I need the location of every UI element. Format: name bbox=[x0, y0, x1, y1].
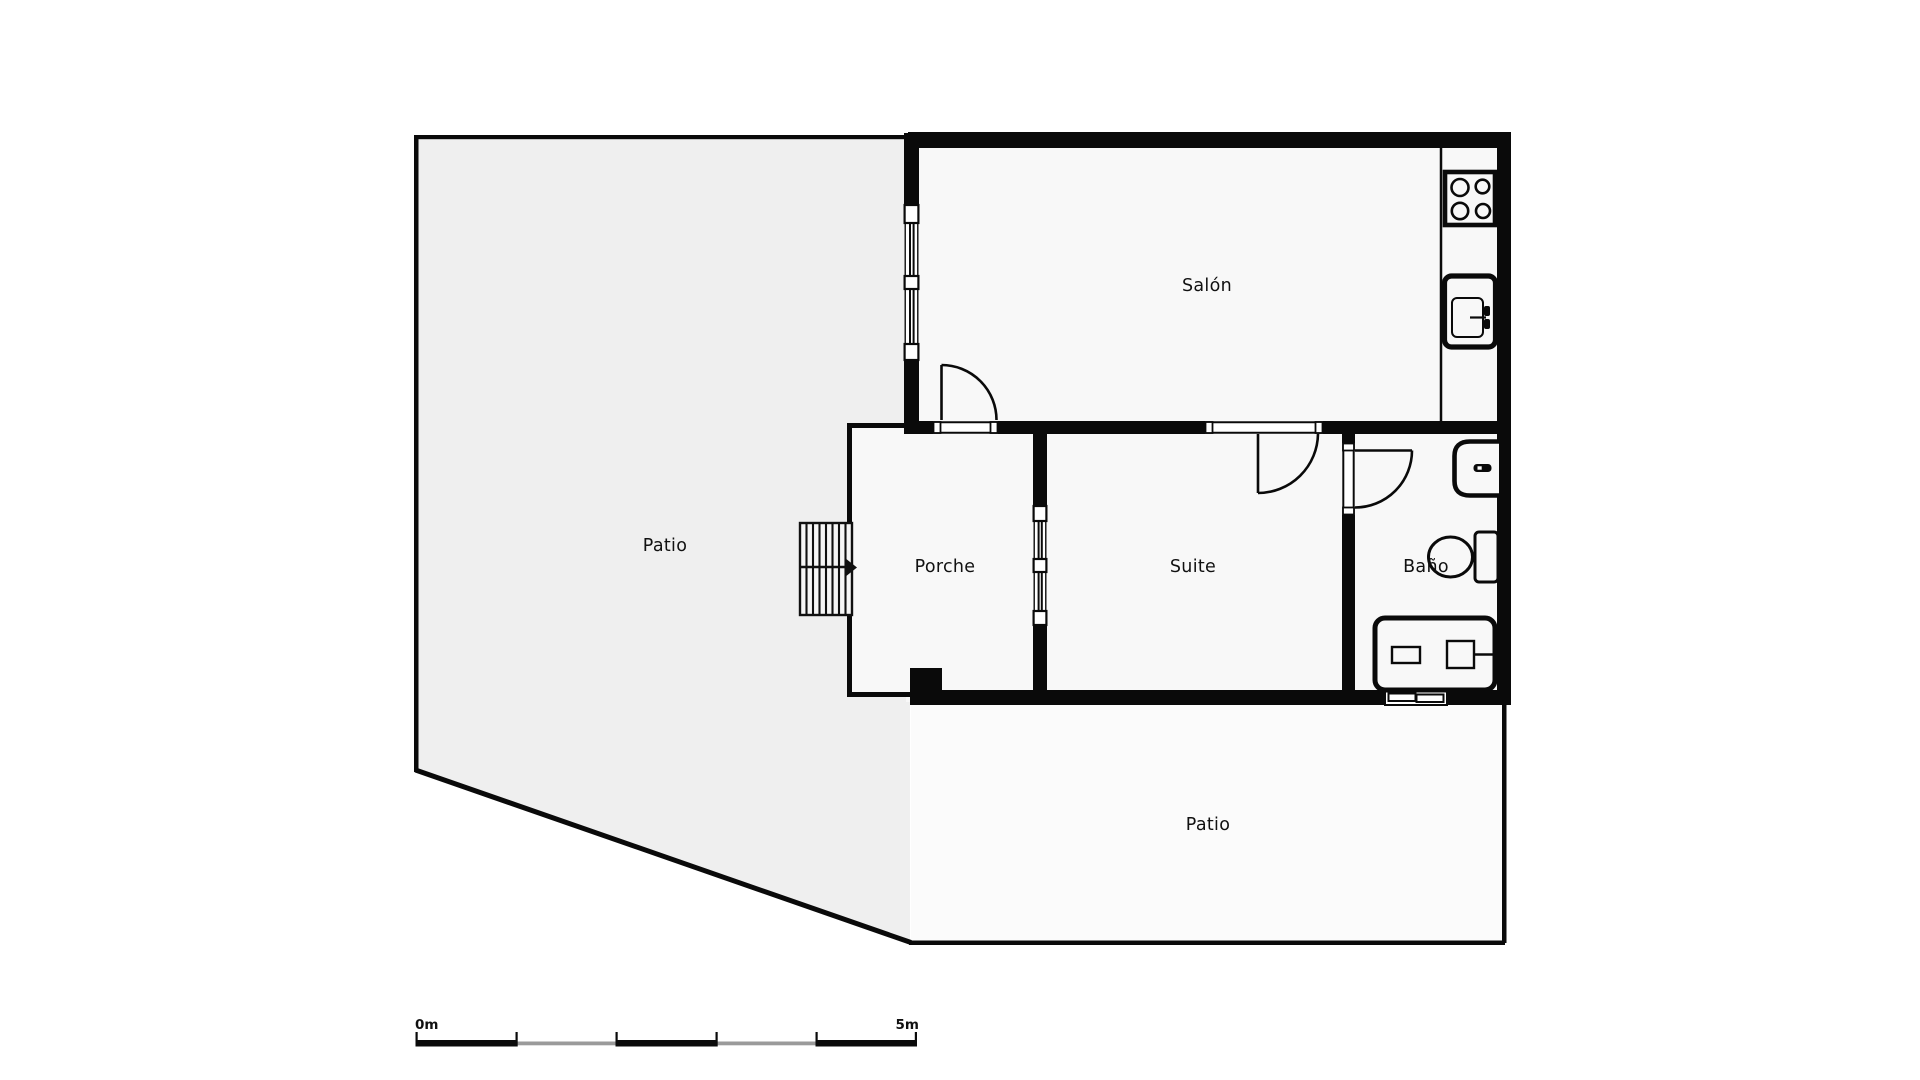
wall-suite-bano-stub bbox=[1342, 434, 1355, 443]
floor-plan-canvas: Patio Salón Porche Suite Baño Patio 0m 5… bbox=[0, 0, 1920, 1080]
wall-bottom-a bbox=[910, 690, 1385, 705]
wall-porche-suite-lower bbox=[1033, 625, 1047, 692]
patio-bottom-edge-line bbox=[909, 941, 1505, 946]
threshold-bano bbox=[1342, 443, 1355, 515]
label-suite: Suite bbox=[1170, 557, 1216, 577]
scale-start-label: 0m bbox=[415, 1017, 438, 1033]
wall-porche-suite-upper bbox=[1033, 434, 1047, 505]
kitchen-sink-icon bbox=[1445, 276, 1496, 347]
wall-mid-a bbox=[904, 421, 933, 434]
wall-top bbox=[908, 132, 1511, 148]
wall-mid-b bbox=[998, 421, 1205, 434]
porch-bottom-line bbox=[847, 692, 913, 697]
stairs-icon bbox=[800, 523, 857, 615]
window-salon-left bbox=[904, 204, 919, 361]
window-porche-suite bbox=[1033, 505, 1047, 625]
bathtub-icon bbox=[1375, 618, 1496, 690]
patio-top-line bbox=[414, 135, 910, 139]
scale-bar: 0m 5m bbox=[415, 1017, 919, 1047]
scale-end-label: 5m bbox=[896, 1017, 919, 1033]
wall-mid-c bbox=[1323, 421, 1511, 434]
washbasin-icon bbox=[1455, 442, 1500, 496]
threshold-suite bbox=[1205, 421, 1323, 434]
threshold-salon bbox=[933, 421, 998, 434]
floor-plan-page: Patio Salón Porche Suite Baño Patio 0m 5… bbox=[0, 0, 1920, 1080]
porch-top-line bbox=[847, 423, 907, 428]
label-bano: Baño bbox=[1403, 557, 1449, 577]
patio-bottom-right-line bbox=[1502, 700, 1507, 943]
wall-right bbox=[1497, 132, 1511, 704]
stove-icon bbox=[1445, 172, 1495, 225]
label-porche: Porche bbox=[915, 557, 976, 577]
wall-salon-left-upper bbox=[904, 133, 919, 204]
label-patio-bottom: Patio bbox=[1186, 815, 1230, 835]
stairs-treads bbox=[807, 523, 846, 615]
porch-pillar bbox=[910, 668, 942, 692]
wall-suite-bano-lower bbox=[1342, 515, 1355, 692]
patio-left-line bbox=[414, 135, 419, 772]
label-salon: Salón bbox=[1182, 276, 1232, 296]
label-patio-left: Patio bbox=[643, 536, 687, 556]
